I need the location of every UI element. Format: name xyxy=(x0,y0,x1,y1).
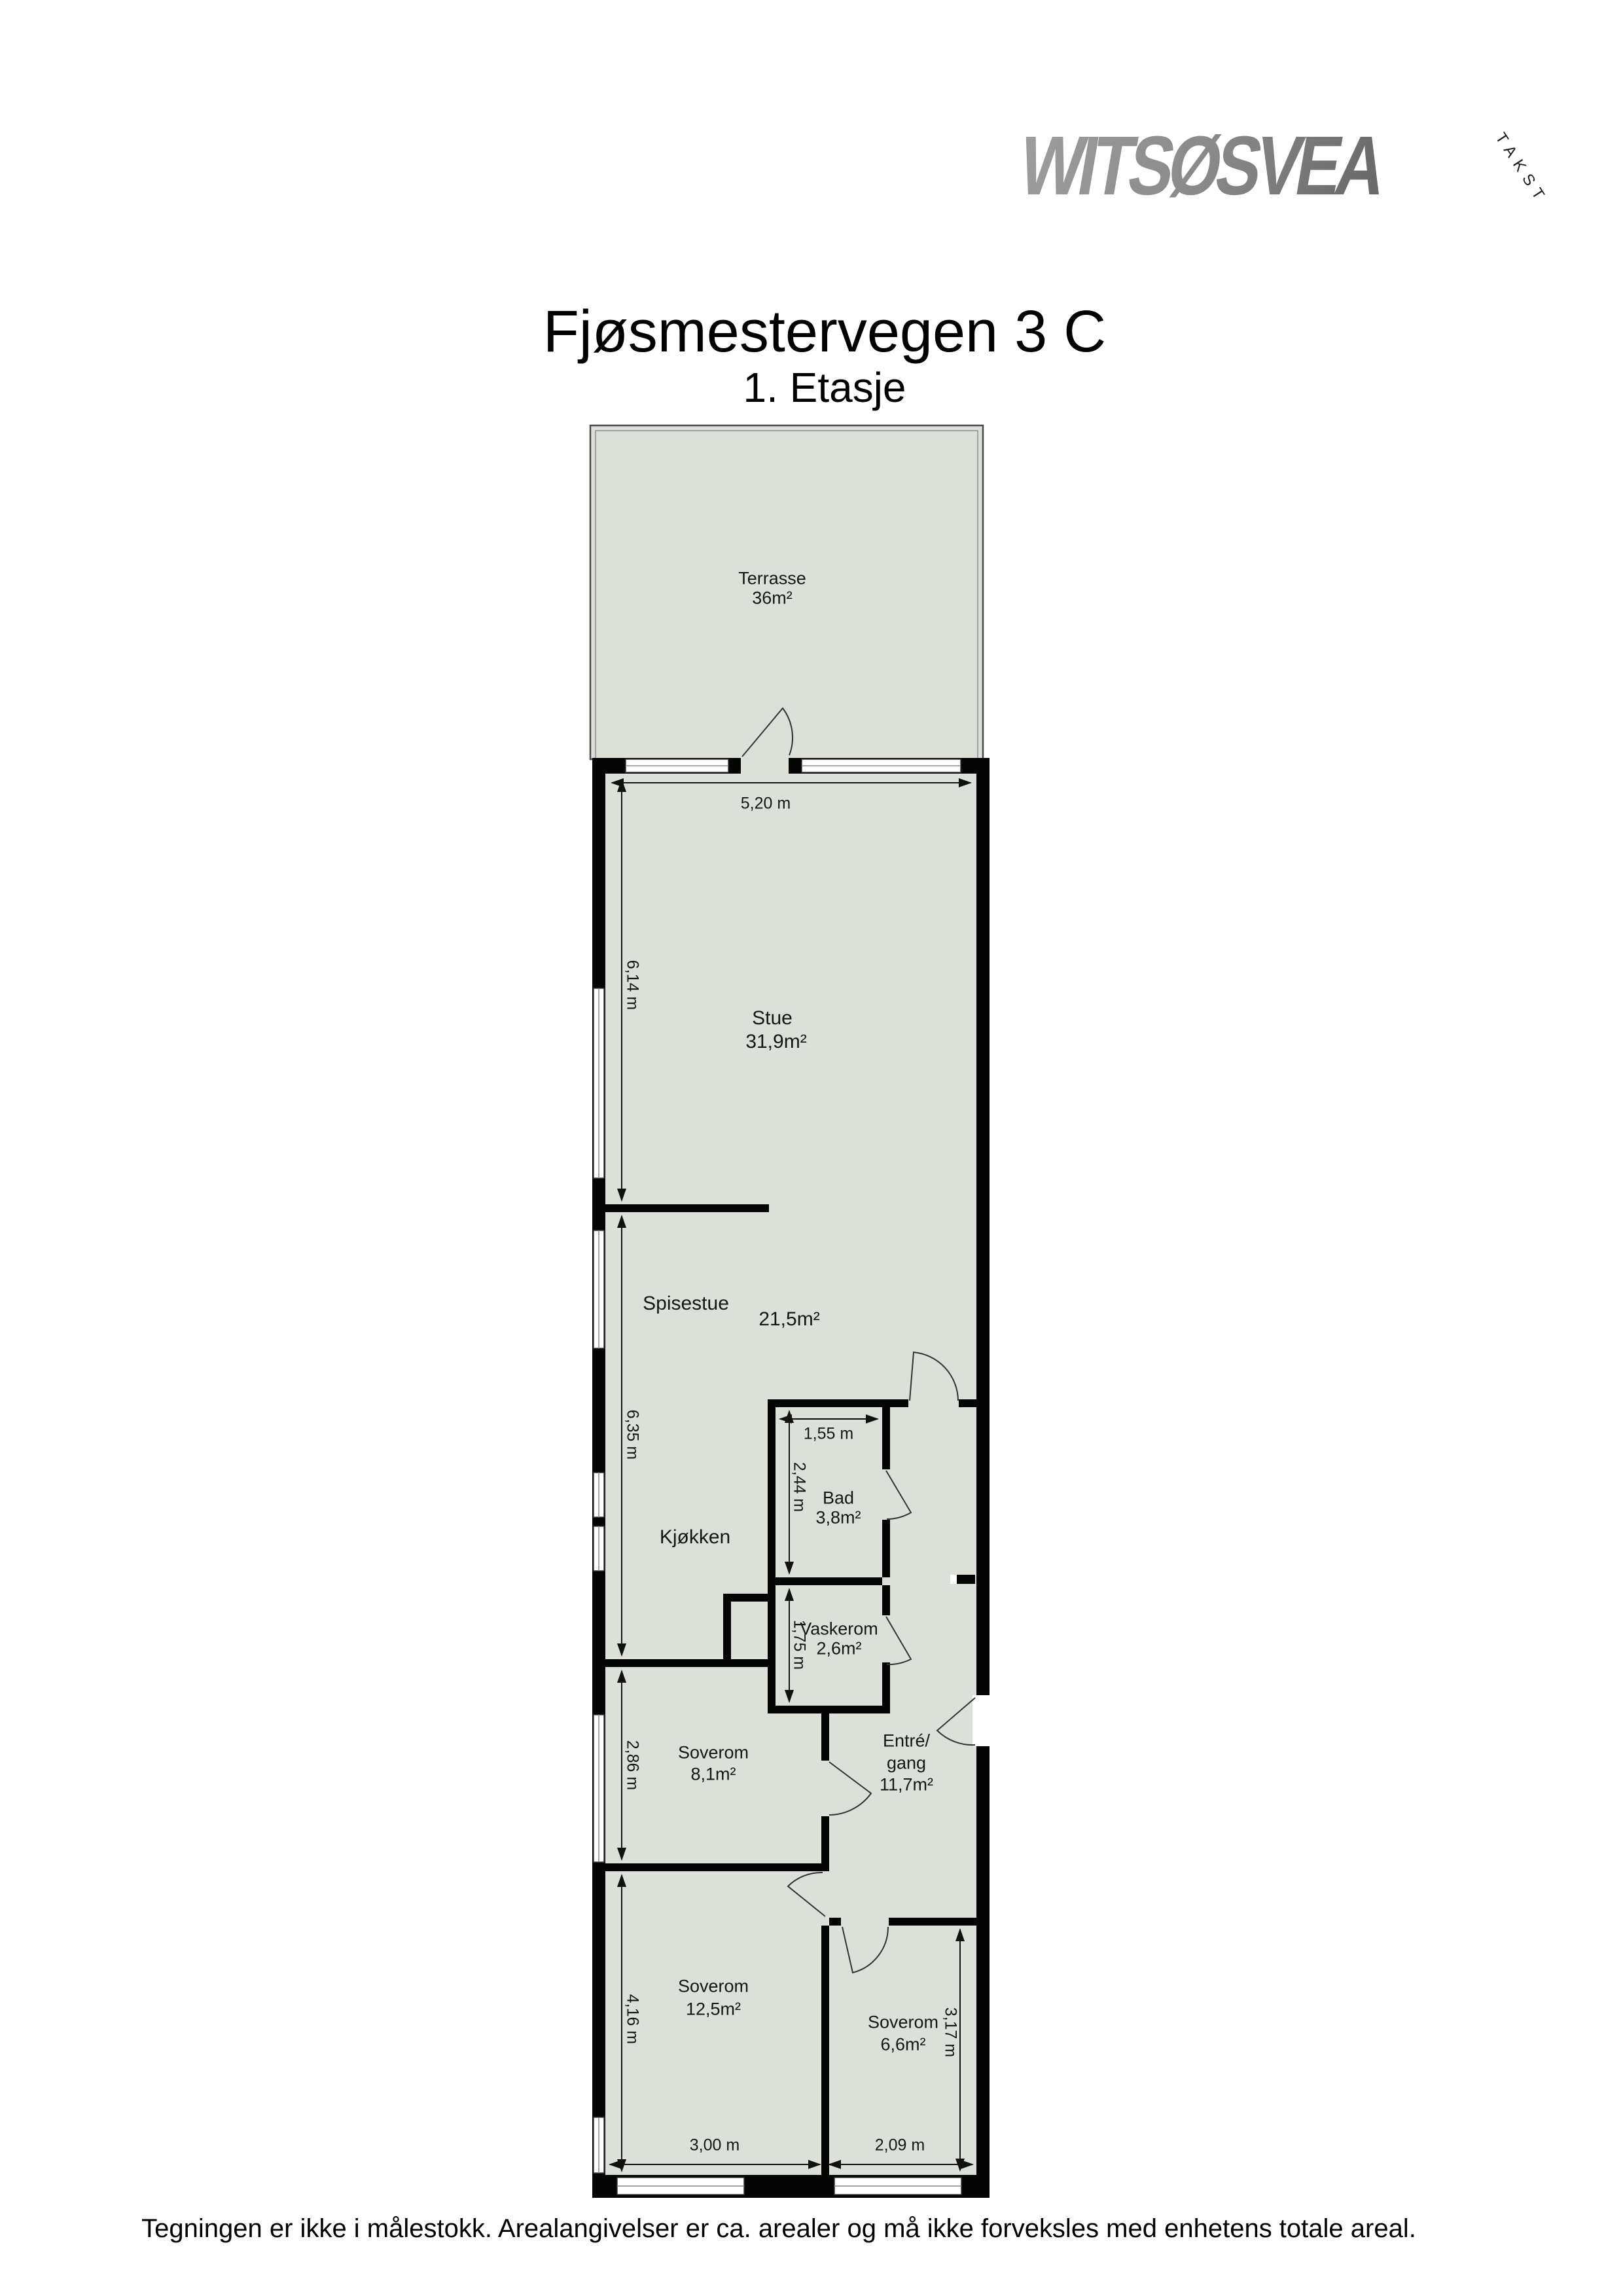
floorplan-page: { "logo": { "brand": "WITSØSVEA", "tagli… xyxy=(0,0,1623,2296)
dim-label-width-sov2: 3,00 m xyxy=(690,2136,740,2155)
room-area-stue: 31,9m² xyxy=(745,1031,806,1053)
room-label-terrasse: Terrasse xyxy=(738,569,806,589)
room-label-bad: Bad xyxy=(823,1488,854,1509)
room-area-vaskerom: 2,6m² xyxy=(816,1639,861,1659)
room-label-stue: Stue xyxy=(752,1007,793,1030)
terrace-door-opening xyxy=(741,757,789,775)
room-area-entre: 11,7m² xyxy=(880,1775,933,1795)
room-area-bad: 3,8m² xyxy=(815,1508,861,1528)
entrance-door-opening xyxy=(972,1695,992,1746)
room-area-soverom-2: 12,5m² xyxy=(686,2000,741,2020)
right-stub-cap xyxy=(950,1575,957,1584)
dim-label-height-spis: 6,35 m xyxy=(623,1410,642,1460)
room-label-soverom-2: Soverom xyxy=(678,1977,749,1997)
room-label-kjokken: Kjøkken xyxy=(660,1526,730,1549)
dim-label-height-vask: 1,75 m xyxy=(790,1620,809,1670)
room-area-soverom-3: 6,6m² xyxy=(880,2035,925,2055)
dim-label-height-sov1: 2,86 m xyxy=(623,1740,642,1790)
room-label-entre-line2: gang xyxy=(887,1753,926,1774)
dim-label-height-sov3: 3,17 m xyxy=(941,2007,960,2057)
room-label-soverom-1: Soverom xyxy=(678,1743,749,1763)
room-label-vaskerom: Vaskerom xyxy=(800,1619,878,1640)
dim-label-width-top: 5,20 m xyxy=(741,795,791,814)
dim-label-height-sov2: 4,16 m xyxy=(623,1994,642,2044)
room-label-soverom-3: Soverom xyxy=(868,2013,938,2033)
floor-plan-graphic xyxy=(0,0,1623,2296)
room-label-spisestue: Spisestue xyxy=(643,1293,729,1315)
room-area-soverom-1: 8,1m² xyxy=(690,1765,736,1785)
footer-disclaimer: Tegningen er ikke i målestokk. Arealangi… xyxy=(0,2214,1558,2244)
dim-label-height-bad: 2,44 m xyxy=(790,1462,809,1512)
room-label-entre-line1: Entré/ xyxy=(883,1731,930,1751)
dim-label-width-sov3: 2,09 m xyxy=(875,2136,925,2155)
room-area-terrasse: 36m² xyxy=(752,588,793,609)
dim-label-height-stue: 6,14 m xyxy=(623,960,642,1010)
room-area-spisestue: 21,5m² xyxy=(758,1308,819,1331)
dim-label-width-bad: 1,55 m xyxy=(804,1425,853,1444)
